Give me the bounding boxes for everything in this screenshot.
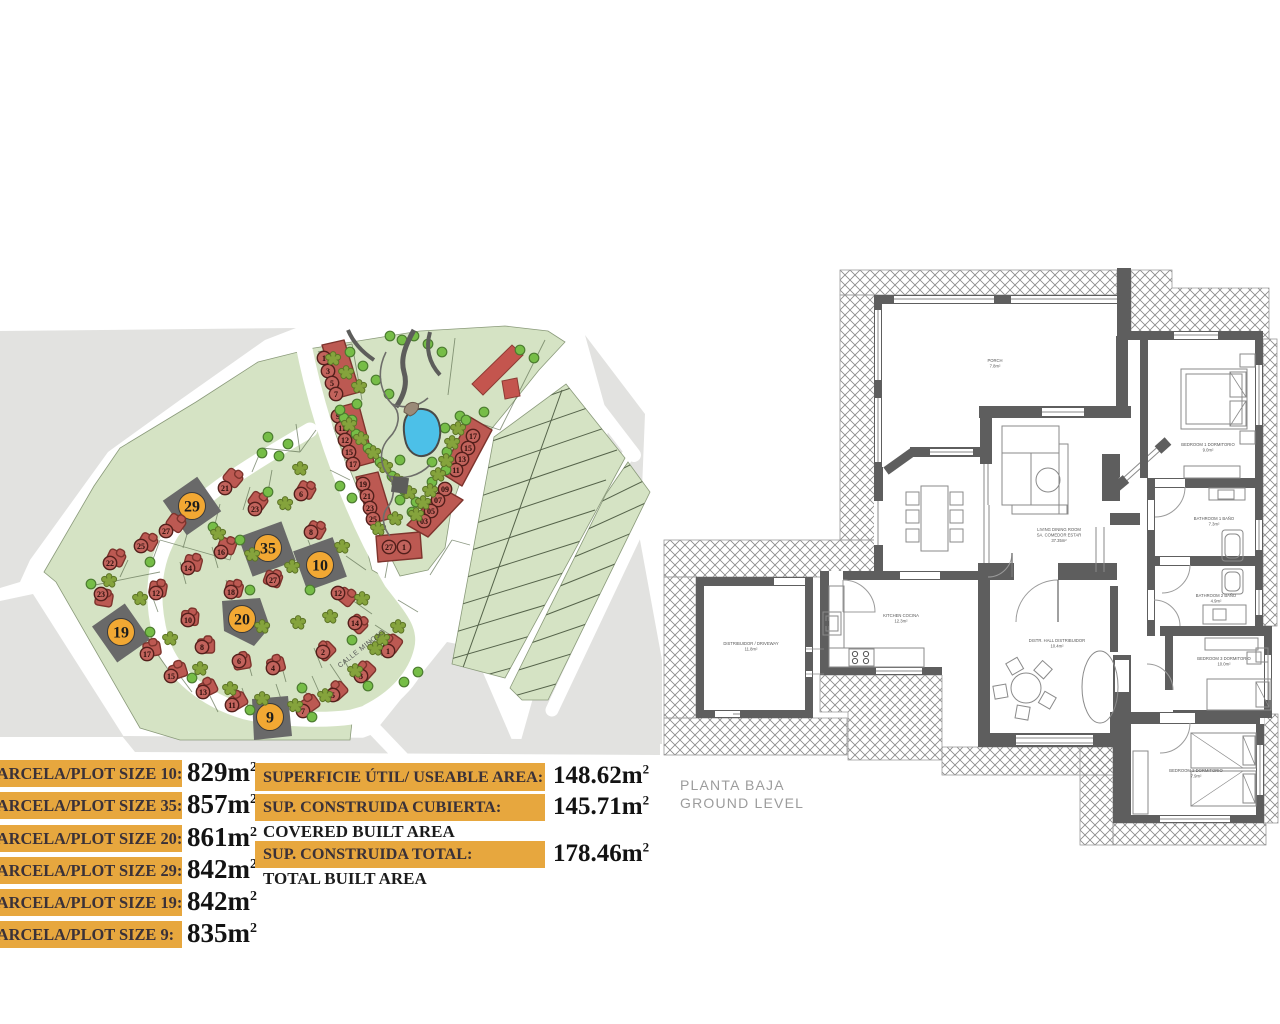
svg-text:6: 6 (237, 657, 241, 666)
svg-text:7: 7 (334, 390, 338, 399)
svg-text:SA. COMEDOR ESTAR: SA. COMEDOR ESTAR (1037, 533, 1082, 538)
svg-text:7.8m²: 7.8m² (990, 364, 1001, 369)
svg-text:3: 3 (326, 367, 330, 376)
svg-text:10: 10 (184, 616, 192, 625)
svg-text:27: 27 (269, 576, 277, 585)
svg-text:07: 07 (434, 496, 442, 505)
svg-text:29: 29 (184, 498, 200, 515)
svg-text:14: 14 (351, 619, 359, 628)
svg-text:BEDROOM 3 DORMITORIO: BEDROOM 3 DORMITORIO (1197, 656, 1251, 661)
svg-text:8: 8 (200, 643, 204, 652)
svg-text:13: 13 (199, 688, 207, 697)
svg-text:7: 7 (301, 707, 305, 716)
svg-text:PORCH: PORCH (987, 358, 1002, 363)
svg-text:4.9m²: 4.9m² (1211, 599, 1222, 604)
svg-text:12: 12 (152, 589, 160, 598)
svg-text:12: 12 (341, 436, 349, 445)
svg-text:6: 6 (299, 490, 303, 499)
svg-text:20: 20 (234, 611, 250, 628)
svg-text:23: 23 (366, 504, 374, 513)
svg-text:23: 23 (97, 590, 105, 599)
svg-text:11: 11 (228, 701, 236, 710)
svg-text:21: 21 (363, 492, 371, 501)
svg-text:9.0m²: 9.0m² (1203, 448, 1214, 453)
svg-text:10.0m²: 10.0m² (1217, 662, 1231, 667)
svg-text:37.35m²: 37.35m² (1051, 538, 1067, 543)
svg-text:23: 23 (251, 505, 259, 514)
svg-text:19: 19 (113, 624, 129, 641)
svg-text:12: 12 (334, 589, 342, 598)
svg-text:11: 11 (452, 466, 460, 475)
svg-text:9: 9 (266, 709, 274, 726)
svg-text:15: 15 (464, 444, 472, 453)
svg-text:12.3m²: 12.3m² (894, 619, 908, 624)
svg-text:35: 35 (260, 540, 276, 557)
svg-text:4: 4 (271, 664, 275, 673)
svg-text:5: 5 (330, 379, 334, 388)
svg-text:27: 27 (162, 527, 170, 536)
svg-text:19: 19 (359, 480, 367, 489)
svg-text:25: 25 (137, 542, 145, 551)
svg-text:1: 1 (402, 543, 406, 552)
svg-text:7.3m²: 7.3m² (1209, 522, 1220, 527)
svg-text:1: 1 (386, 647, 390, 656)
svg-text:BATHROOM 1 BAÑO: BATHROOM 1 BAÑO (1194, 516, 1235, 521)
svg-text:2: 2 (321, 648, 325, 657)
svg-text:7.9m²: 7.9m² (1191, 774, 1202, 779)
svg-text:10: 10 (312, 557, 328, 574)
svg-text:15: 15 (167, 672, 175, 681)
svg-text:BEDROOM 2 DORMITORIO: BEDROOM 2 DORMITORIO (1169, 768, 1223, 773)
svg-text:10.4m²: 10.4m² (1050, 644, 1064, 649)
svg-text:BEDROOM 1 DORMITORIO: BEDROOM 1 DORMITORIO (1181, 442, 1235, 447)
svg-text:17: 17 (469, 432, 477, 441)
svg-text:11.8m²: 11.8m² (745, 647, 758, 652)
svg-text:13: 13 (458, 455, 466, 464)
svg-text:8: 8 (309, 528, 313, 537)
svg-text:27: 27 (385, 543, 393, 552)
svg-text:14: 14 (184, 564, 192, 573)
svg-text:17: 17 (143, 650, 151, 659)
svg-text:LIVING DINING ROOM: LIVING DINING ROOM (1037, 527, 1081, 532)
svg-text:09: 09 (441, 485, 449, 494)
svg-text:DISTRIBUIDOR / DRIVEWAY: DISTRIBUIDOR / DRIVEWAY (723, 641, 779, 646)
svg-text:22: 22 (106, 559, 114, 568)
svg-text:BATHROOM 2 BAÑO: BATHROOM 2 BAÑO (1196, 593, 1237, 598)
svg-text:DISTR. HALL DISTRIBUIDOR: DISTR. HALL DISTRIBUIDOR (1029, 638, 1085, 643)
svg-text:17: 17 (349, 460, 357, 469)
svg-text:KITCHEN COCINA: KITCHEN COCINA (883, 613, 919, 618)
svg-text:18: 18 (227, 588, 235, 597)
svg-text:16: 16 (217, 548, 225, 557)
svg-text:21: 21 (221, 484, 229, 493)
svg-text:15: 15 (345, 448, 353, 457)
